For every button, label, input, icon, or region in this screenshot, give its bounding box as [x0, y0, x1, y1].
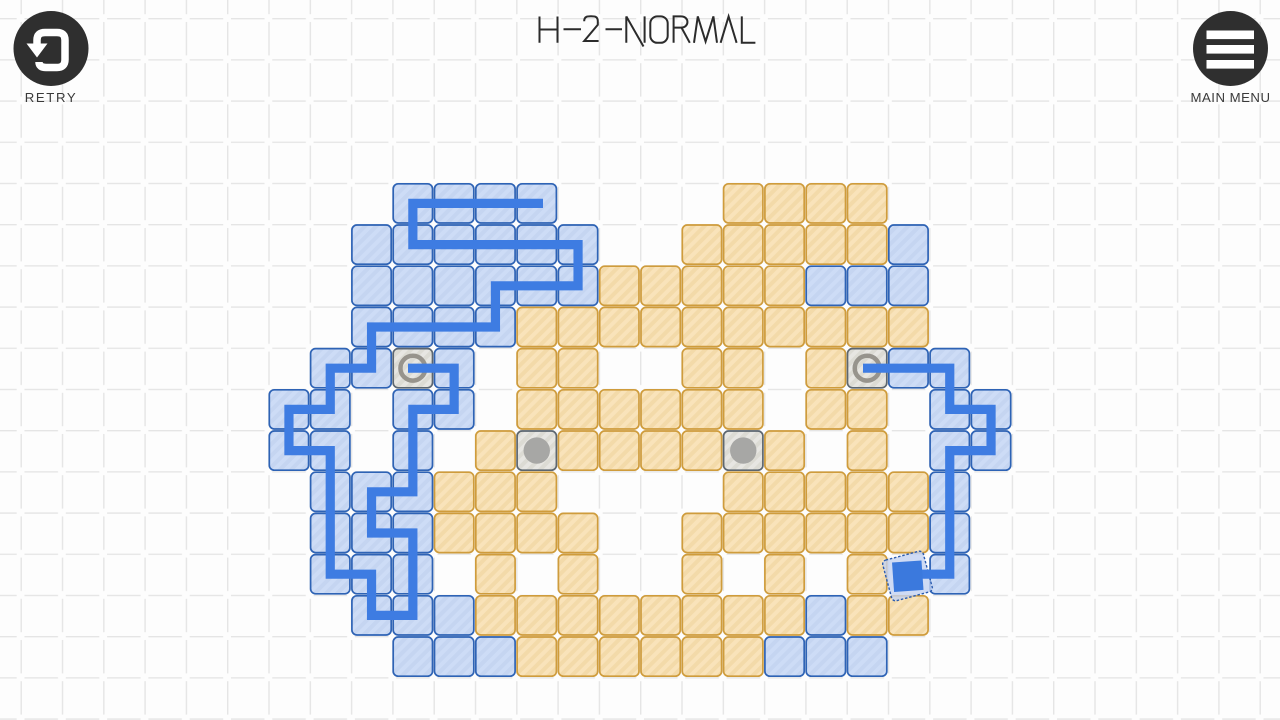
svg-text:RETRY: RETRY	[25, 90, 77, 105]
svg-text:MAIN MENU: MAIN MENU	[1191, 90, 1271, 105]
